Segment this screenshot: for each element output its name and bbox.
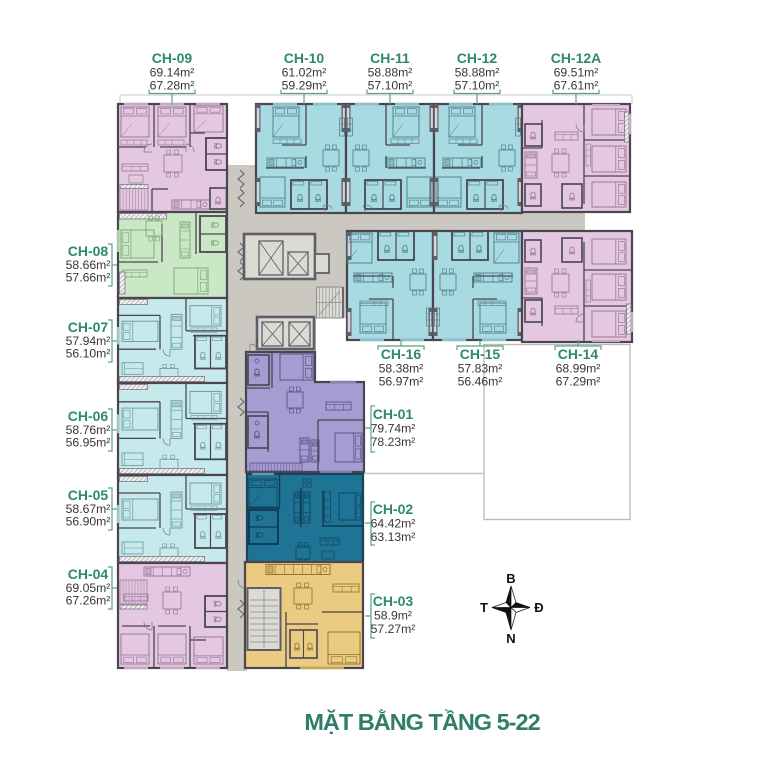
svg-text:56.90m²: 56.90m² (66, 515, 111, 529)
svg-text:57.10m²: 57.10m² (455, 79, 500, 93)
svg-text:67.28m²: 67.28m² (150, 79, 195, 93)
svg-text:CH-16: CH-16 (381, 346, 422, 362)
svg-text:CH-14: CH-14 (558, 346, 599, 362)
svg-text:56.10m²: 56.10m² (66, 347, 111, 361)
svg-text:58.88m²: 58.88m² (455, 66, 500, 80)
svg-text:CH-04: CH-04 (68, 566, 109, 582)
svg-text:78.23m²: 78.23m² (371, 435, 416, 449)
svg-text:57.66m²: 57.66m² (66, 271, 111, 285)
svg-text:61.02m²: 61.02m² (282, 66, 327, 80)
svg-text:79.74m²: 79.74m² (371, 422, 416, 436)
svg-text:CH-15: CH-15 (460, 346, 501, 362)
svg-text:64.42m²: 64.42m² (371, 517, 416, 531)
svg-text:57.27m²: 57.27m² (371, 622, 416, 636)
svg-text:T: T (480, 600, 488, 615)
svg-text:MẶT BẰNG TẦNG 5-22: MẶT BẰNG TẦNG 5-22 (304, 708, 540, 735)
svg-text:57.10m²: 57.10m² (368, 79, 413, 93)
svg-text:58.88m²: 58.88m² (368, 66, 413, 80)
svg-text:CH-09: CH-09 (152, 50, 193, 66)
svg-text:N: N (506, 631, 515, 646)
svg-text:Đ: Đ (534, 600, 543, 615)
svg-text:69.51m²: 69.51m² (554, 66, 599, 80)
svg-text:63.13m²: 63.13m² (371, 530, 416, 544)
svg-text:CH-05: CH-05 (68, 487, 109, 503)
svg-text:56.95m²: 56.95m² (66, 436, 111, 450)
svg-text:68.99m²: 68.99m² (556, 362, 601, 376)
svg-text:CH-08: CH-08 (68, 243, 109, 259)
svg-text:CH-11: CH-11 (370, 50, 410, 66)
svg-text:CH-12A: CH-12A (551, 50, 602, 66)
svg-text:CH-01: CH-01 (373, 406, 414, 422)
svg-text:CH-12: CH-12 (457, 50, 498, 66)
svg-text:58.9m²: 58.9m² (374, 609, 412, 623)
svg-text:57.83m²: 57.83m² (458, 362, 503, 376)
svg-text:CH-10: CH-10 (284, 50, 325, 66)
svg-text:B: B (506, 571, 515, 586)
svg-text:56.46m²: 56.46m² (458, 375, 503, 389)
svg-text:CH-03: CH-03 (373, 593, 414, 609)
svg-text:56.97m²: 56.97m² (379, 375, 424, 389)
svg-text:69.14m²: 69.14m² (150, 66, 195, 80)
svg-text:59.29m²: 59.29m² (282, 79, 327, 93)
svg-text:CH-06: CH-06 (68, 408, 109, 424)
svg-text:CH-07: CH-07 (68, 319, 109, 335)
svg-text:58.38m²: 58.38m² (379, 362, 424, 376)
svg-text:67.29m²: 67.29m² (556, 375, 601, 389)
svg-text:CH-02: CH-02 (373, 501, 414, 517)
svg-text:67.61m²: 67.61m² (554, 79, 599, 93)
svg-text:67.26m²: 67.26m² (66, 594, 111, 608)
